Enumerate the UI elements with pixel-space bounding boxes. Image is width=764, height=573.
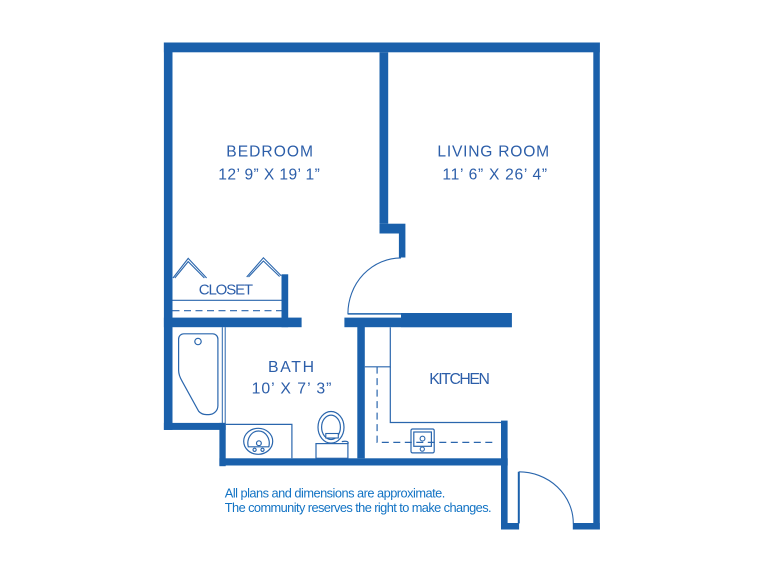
svg-text:The community reserves the rig: The community reserves the right to make… <box>225 500 492 515</box>
svg-text:LIVING ROOM: LIVING ROOM <box>437 144 549 161</box>
svg-text:12’ 9” X 19’ 1”: 12’ 9” X 19’ 1” <box>218 167 319 184</box>
svg-text:CLOSET: CLOSET <box>199 281 253 298</box>
svg-text:KITCHEN: KITCHEN <box>429 371 490 388</box>
svg-text:All plans and dimensions are a: All plans and dimensions are approximate… <box>225 486 445 501</box>
svg-text:BEDROOM: BEDROOM <box>226 144 313 161</box>
svg-text:BATH: BATH <box>268 359 314 376</box>
svg-text:11’ 6” X 26’ 4”: 11’ 6” X 26’ 4” <box>442 167 547 184</box>
svg-text:10’ X 7’ 3”: 10’ X 7’ 3” <box>252 380 332 397</box>
